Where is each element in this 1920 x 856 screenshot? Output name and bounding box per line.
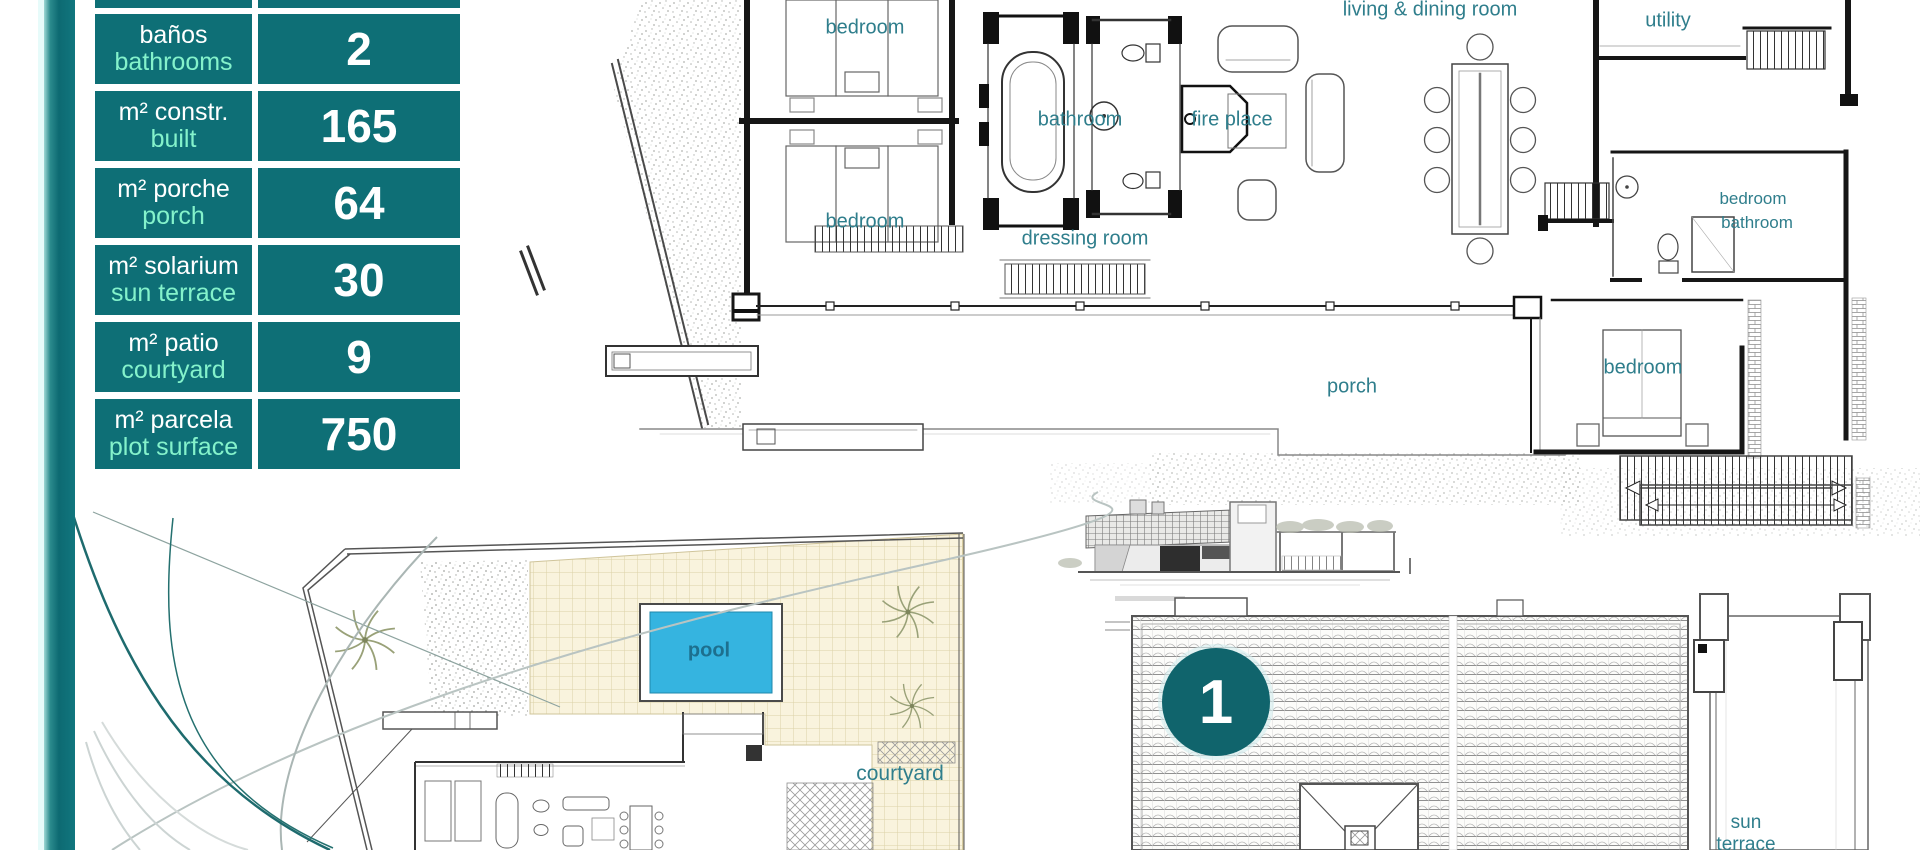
spec-value: 165	[258, 91, 460, 161]
roof-label-sun-terrace: sun terrace	[1701, 812, 1791, 856]
table-row: m² patio courtyard 9	[95, 322, 460, 392]
chimney	[1152, 502, 1164, 514]
spec-label-es: m² solarium	[108, 253, 239, 281]
brick-wall-texture	[1852, 298, 1866, 440]
site-label-pool: pool	[688, 640, 730, 663]
room-label-fireplace: fire place	[1191, 109, 1272, 132]
spec-value: 64	[258, 168, 460, 238]
planter-box	[743, 424, 923, 450]
room-label-bedroom: bedroom	[1719, 189, 1786, 209]
staircase-icon	[1545, 183, 1609, 219]
spec-value: 9	[258, 322, 460, 392]
room-label-utility: utility	[1645, 10, 1691, 33]
spec-label-cell: m² patio courtyard	[95, 322, 252, 392]
dining-table-icon	[1425, 34, 1536, 264]
toilet-icon	[1122, 44, 1160, 62]
brick-wall-texture	[1748, 300, 1761, 458]
accent-bar	[44, 0, 75, 850]
room-label-dressing-room: dressing room	[1022, 228, 1149, 251]
chimney	[1130, 500, 1146, 514]
upper-floor-stair-fragment	[1640, 478, 1870, 528]
ground-floor-plan	[521, 0, 1920, 536]
spec-value: 2	[258, 14, 460, 84]
spec-label-es: m² porche	[117, 176, 230, 204]
spec-label-cell: m² constr. built	[95, 91, 252, 161]
spec-label-en: porch	[142, 203, 205, 231]
mini-house-plan	[307, 712, 763, 850]
toilet-icon	[1658, 234, 1678, 273]
spec-label-en: bathrooms	[114, 49, 232, 77]
table-cutoff-row	[258, 0, 460, 8]
dark-window	[1160, 546, 1200, 572]
room-label-bedroom: bedroom	[826, 211, 905, 234]
room-label-living-dining: living & dining room	[1343, 0, 1518, 22]
spec-label-en: courtyard	[121, 357, 225, 385]
spec-label-cell: m² solarium sun terrace	[95, 245, 252, 315]
spec-label-en: built	[151, 126, 197, 154]
table-row: m² constr. built 165	[95, 91, 460, 161]
planter-box	[606, 346, 758, 376]
spec-label-cell: m² parcela plot surface	[95, 399, 252, 469]
table-row: m² parcela plot surface 750	[95, 399, 460, 469]
courtyard-hatch	[787, 783, 873, 850]
armchair-icon	[1238, 180, 1276, 220]
spec-label-en: plot surface	[109, 434, 238, 462]
courtyard-hatch	[878, 742, 955, 763]
brochure-page: baños bathrooms 2 m² constr. built 165 m…	[0, 0, 1920, 850]
table-row: m² porche porch 64	[95, 168, 460, 238]
staircase-icon	[1747, 31, 1825, 69]
room-label-bathroom: bathroom	[1038, 109, 1123, 132]
spec-label-cell: baños bathrooms	[95, 14, 252, 84]
dark-window	[1202, 546, 1230, 559]
gravel-texture	[420, 560, 528, 716]
spec-label-es: m² parcela	[114, 407, 232, 435]
table-row: m² solarium sun terrace 30	[95, 245, 460, 315]
spec-label-es: baños	[139, 22, 207, 50]
bed-icon	[1577, 330, 1708, 446]
room-label-bedroom: bedroom	[1604, 357, 1683, 380]
elevation-drawing	[1058, 500, 1410, 601]
site-plan	[303, 533, 964, 850]
sink-icon	[1616, 176, 1638, 198]
skylight	[1300, 784, 1418, 850]
room-label-bathroom: bathroom	[1721, 213, 1793, 233]
porch-window-wall	[735, 297, 1541, 318]
site-label-courtyard: courtyard	[856, 762, 944, 786]
table-row: baños bathrooms 2	[95, 14, 460, 84]
spec-label-en: sun terrace	[111, 280, 236, 308]
unit-number-badge: 1	[1162, 648, 1270, 756]
spec-value: 750	[258, 399, 460, 469]
spec-label-es: m² constr.	[119, 99, 229, 127]
table-cutoff-row	[95, 0, 252, 8]
room-label-bedroom: bedroom	[826, 17, 905, 40]
room-label-porch: porch	[1327, 376, 1377, 399]
railing-icon	[1000, 260, 1150, 298]
service-wing	[1538, 0, 1866, 440]
spec-value: 30	[258, 245, 460, 315]
spec-label-es: m² patio	[128, 330, 218, 358]
spec-label-cell: m² porche porch	[95, 168, 252, 238]
bidet-icon	[1123, 172, 1160, 189]
